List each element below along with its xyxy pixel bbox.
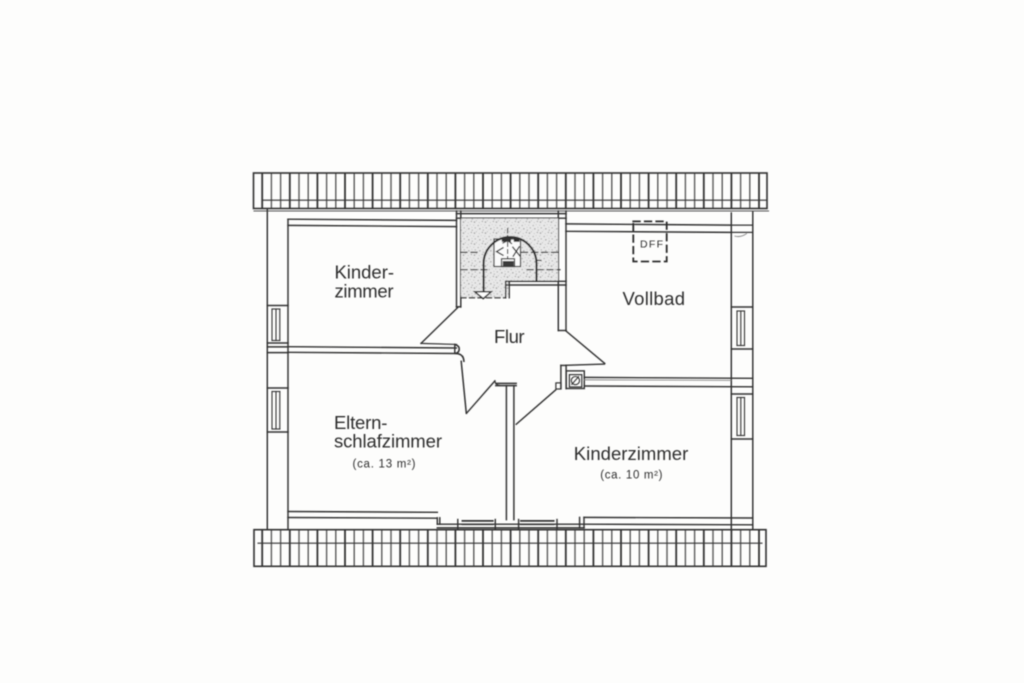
svg-text:Kinderzimmer: Kinderzimmer — [574, 443, 689, 464]
svg-text:zimmer: zimmer — [335, 281, 394, 302]
svg-text:Flur: Flur — [494, 326, 525, 347]
svg-text:(ca. 13 m²): (ca. 13 m²) — [353, 458, 416, 470]
svg-text:Vollbad: Vollbad — [623, 288, 686, 309]
svg-text:Kinder-: Kinder- — [335, 261, 395, 282]
svg-text:(ca. 10 m²): (ca. 10 m²) — [600, 469, 662, 481]
svg-text:schlafzimmer: schlafzimmer — [334, 431, 442, 452]
svg-text:DFF: DFF — [640, 239, 664, 251]
